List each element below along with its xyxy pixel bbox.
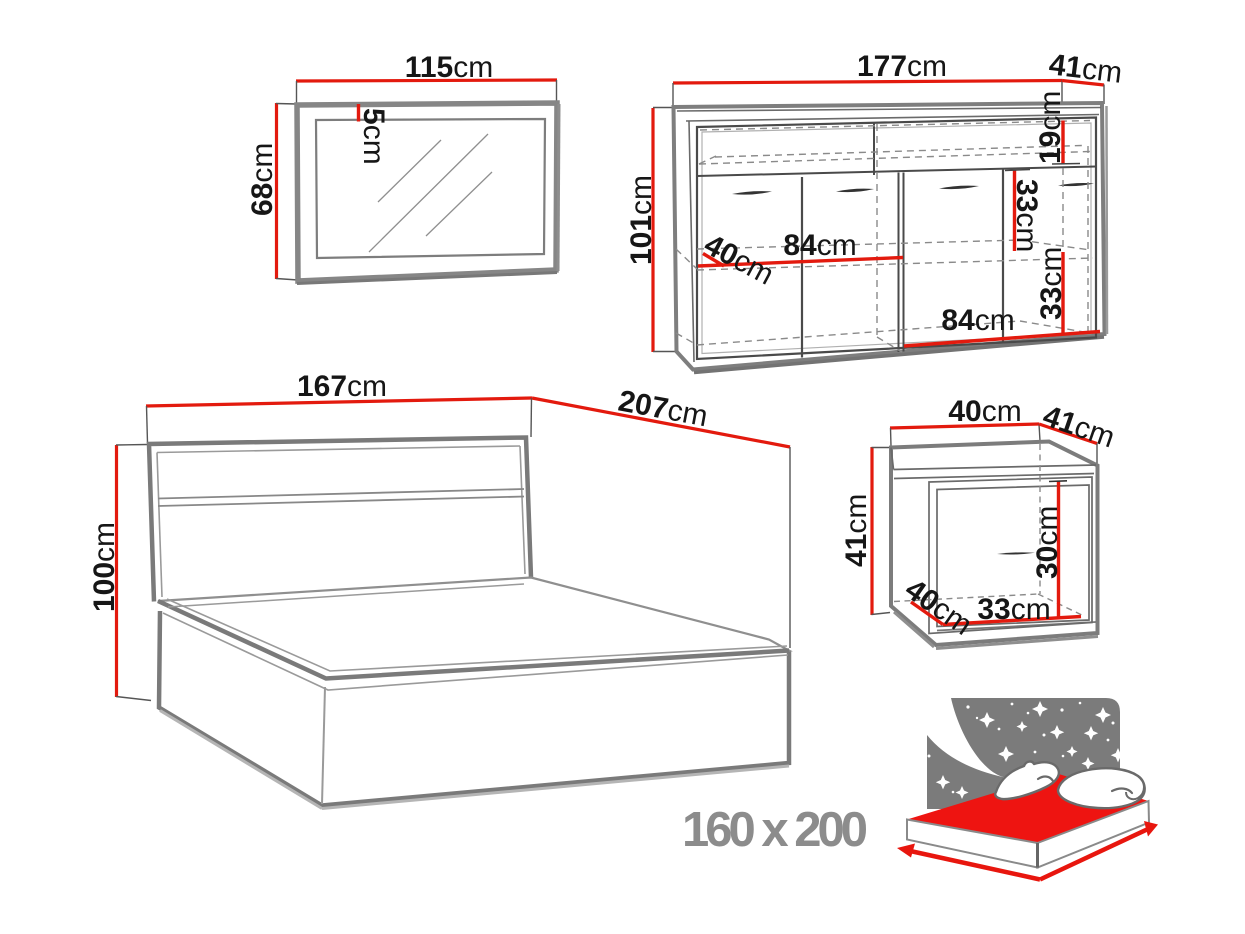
svg-text:33cm: 33cm (1010, 179, 1043, 252)
svg-text:177cm: 177cm (857, 50, 947, 83)
svg-text:41cm: 41cm (1047, 48, 1124, 90)
svg-text:19cm: 19cm (1034, 91, 1067, 164)
svg-text:84cm: 84cm (783, 229, 856, 262)
svg-text:40cm: 40cm (948, 395, 1021, 428)
svg-text:115cm: 115cm (405, 51, 493, 84)
svg-text:5cm: 5cm (357, 108, 390, 165)
svg-text:100cm: 100cm (88, 522, 121, 612)
svg-text:84cm: 84cm (941, 304, 1014, 337)
svg-text:33cm: 33cm (1035, 247, 1068, 320)
svg-text:33cm: 33cm (977, 593, 1050, 626)
svg-text:41cm: 41cm (840, 494, 873, 567)
svg-text:207cm: 207cm (616, 384, 711, 433)
svg-text:68cm: 68cm (246, 143, 279, 216)
svg-text:101cm: 101cm (625, 175, 658, 265)
svg-text:160 x 200: 160 x 200 (682, 803, 867, 857)
svg-text:167cm: 167cm (297, 370, 387, 403)
svg-text:30cm: 30cm (1031, 506, 1064, 579)
